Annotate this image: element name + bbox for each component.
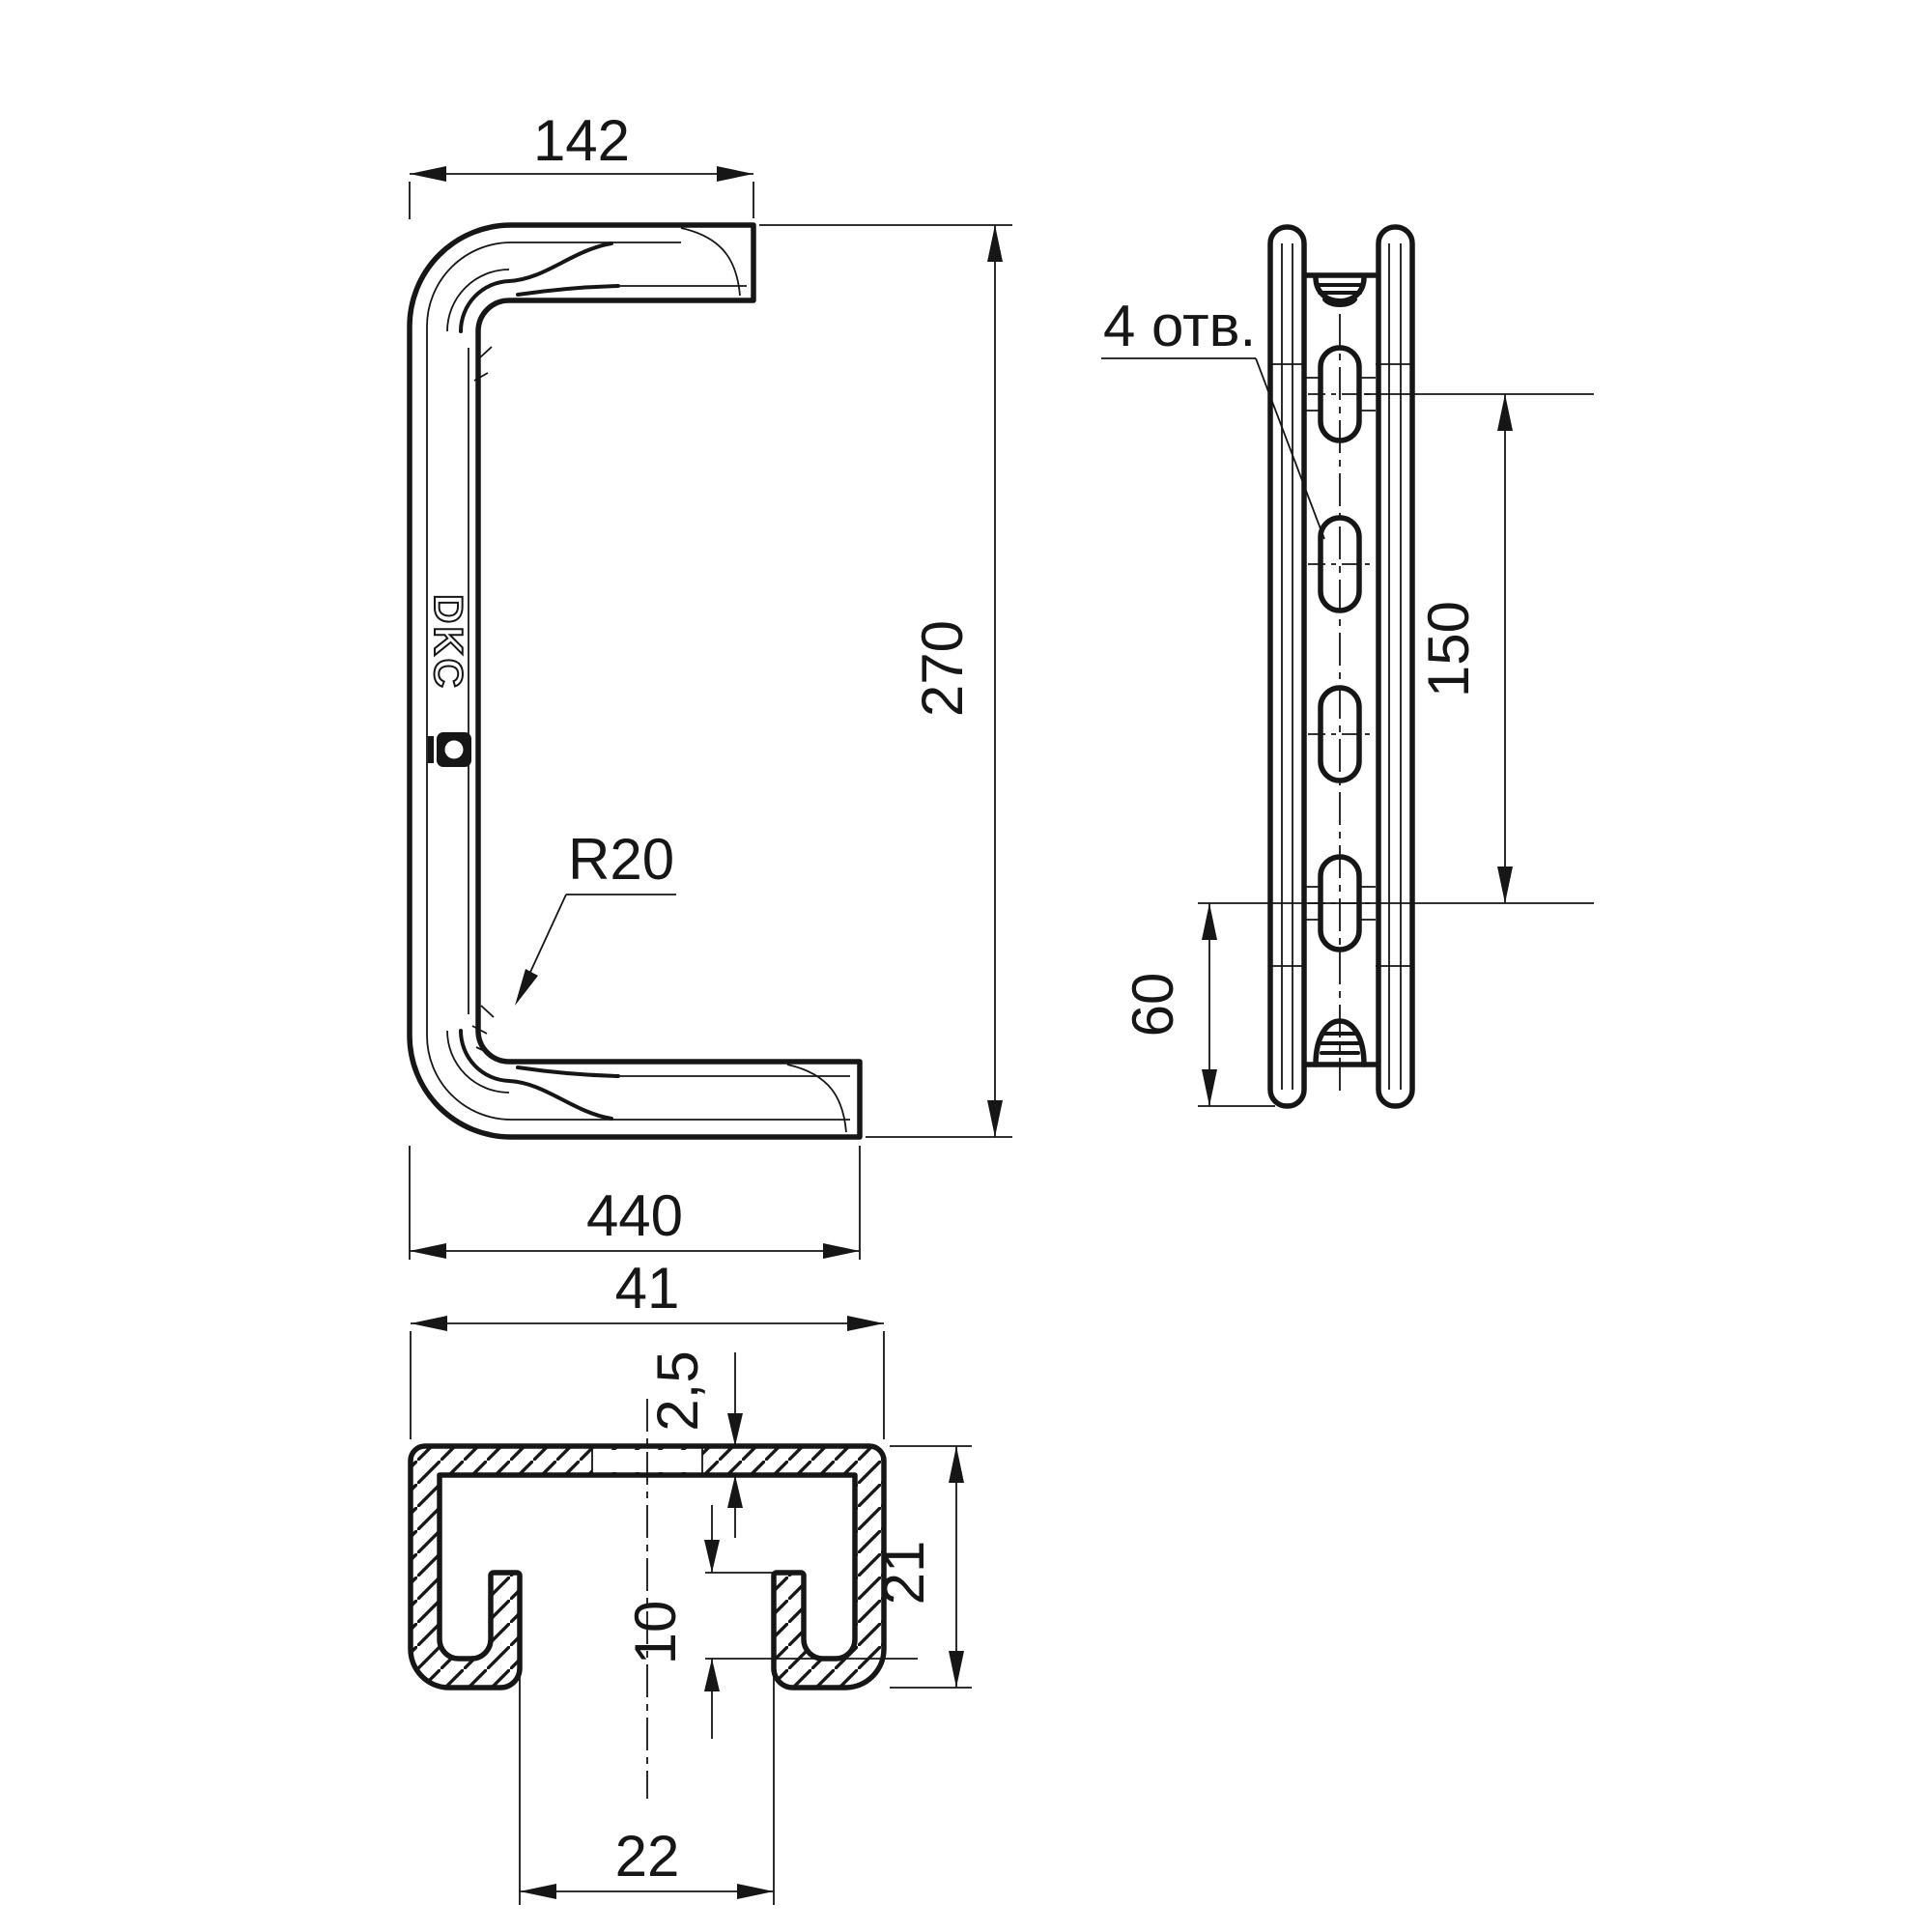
dim-bottom-hole-offset: 60 bbox=[1121, 903, 1275, 1106]
dim-section-width-label: 41 bbox=[615, 1256, 680, 1321]
dim-top-width-label: 142 bbox=[533, 108, 630, 173]
technical-drawing: DKC 142 270 440 R20 bbox=[0, 0, 1932, 1932]
top-lip-s-curve bbox=[518, 286, 618, 295]
bottom-lip-s-curve bbox=[518, 1067, 618, 1076]
front-view: DKC 142 270 440 R20 bbox=[410, 108, 1012, 1260]
right-flange bbox=[1378, 227, 1412, 1106]
bracket-offset-line bbox=[427, 242, 850, 1120]
dim-opening-width-label: 22 bbox=[615, 1824, 680, 1889]
dim-hole-spacing-label: 150 bbox=[1416, 601, 1481, 697]
dim-bottom-width: 440 bbox=[410, 1146, 860, 1260]
dim-top-width: 142 bbox=[410, 108, 753, 219]
dkc-logo-text: DKC bbox=[426, 594, 471, 691]
dim-lip-height-label: 10 bbox=[623, 1601, 688, 1665]
holes-note-label: 4 отв. bbox=[1103, 294, 1256, 358]
dkc-logo-mark bbox=[428, 732, 471, 767]
dim-height-label: 270 bbox=[910, 620, 975, 717]
radius-callout: R20 bbox=[515, 827, 676, 1006]
dim-wall-thickness-label: 2,5 bbox=[645, 1350, 710, 1431]
top-bend-projection bbox=[1316, 277, 1364, 305]
radius-label: R20 bbox=[568, 827, 674, 892]
dim-bottom-width-label: 440 bbox=[586, 1183, 683, 1248]
section-view: 41 2,5 10 21 22 bbox=[411, 1256, 972, 1905]
dim-height: 270 bbox=[759, 225, 1012, 1137]
dim-bottom-hole-offset-label: 60 bbox=[1121, 973, 1185, 1037]
dim-section-height-label: 21 bbox=[871, 1541, 936, 1605]
side-view: 4 отв. 150 60 bbox=[1101, 227, 1594, 1106]
left-flange bbox=[1270, 227, 1304, 1106]
bottom-arm-end-arc bbox=[787, 1065, 846, 1132]
bracket-outline bbox=[410, 225, 860, 1137]
